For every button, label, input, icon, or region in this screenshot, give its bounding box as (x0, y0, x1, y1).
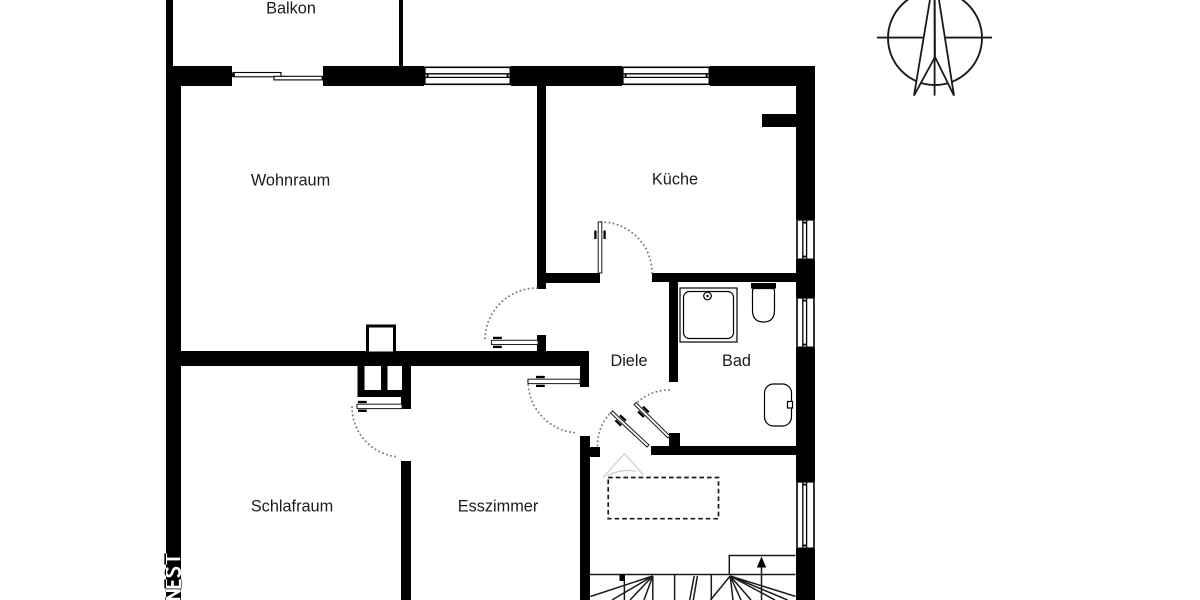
svg-text:Küche: Küche (652, 171, 698, 189)
svg-text:Diele: Diele (610, 352, 647, 370)
svg-text:Esszimmer: Esszimmer (458, 498, 539, 516)
svg-text:Bad: Bad (722, 352, 751, 370)
svg-text:Schlafraum: Schlafraum (251, 498, 333, 516)
svg-text:Wohnraum: Wohnraum (251, 172, 330, 190)
svg-text:Balkon: Balkon (266, 0, 316, 18)
